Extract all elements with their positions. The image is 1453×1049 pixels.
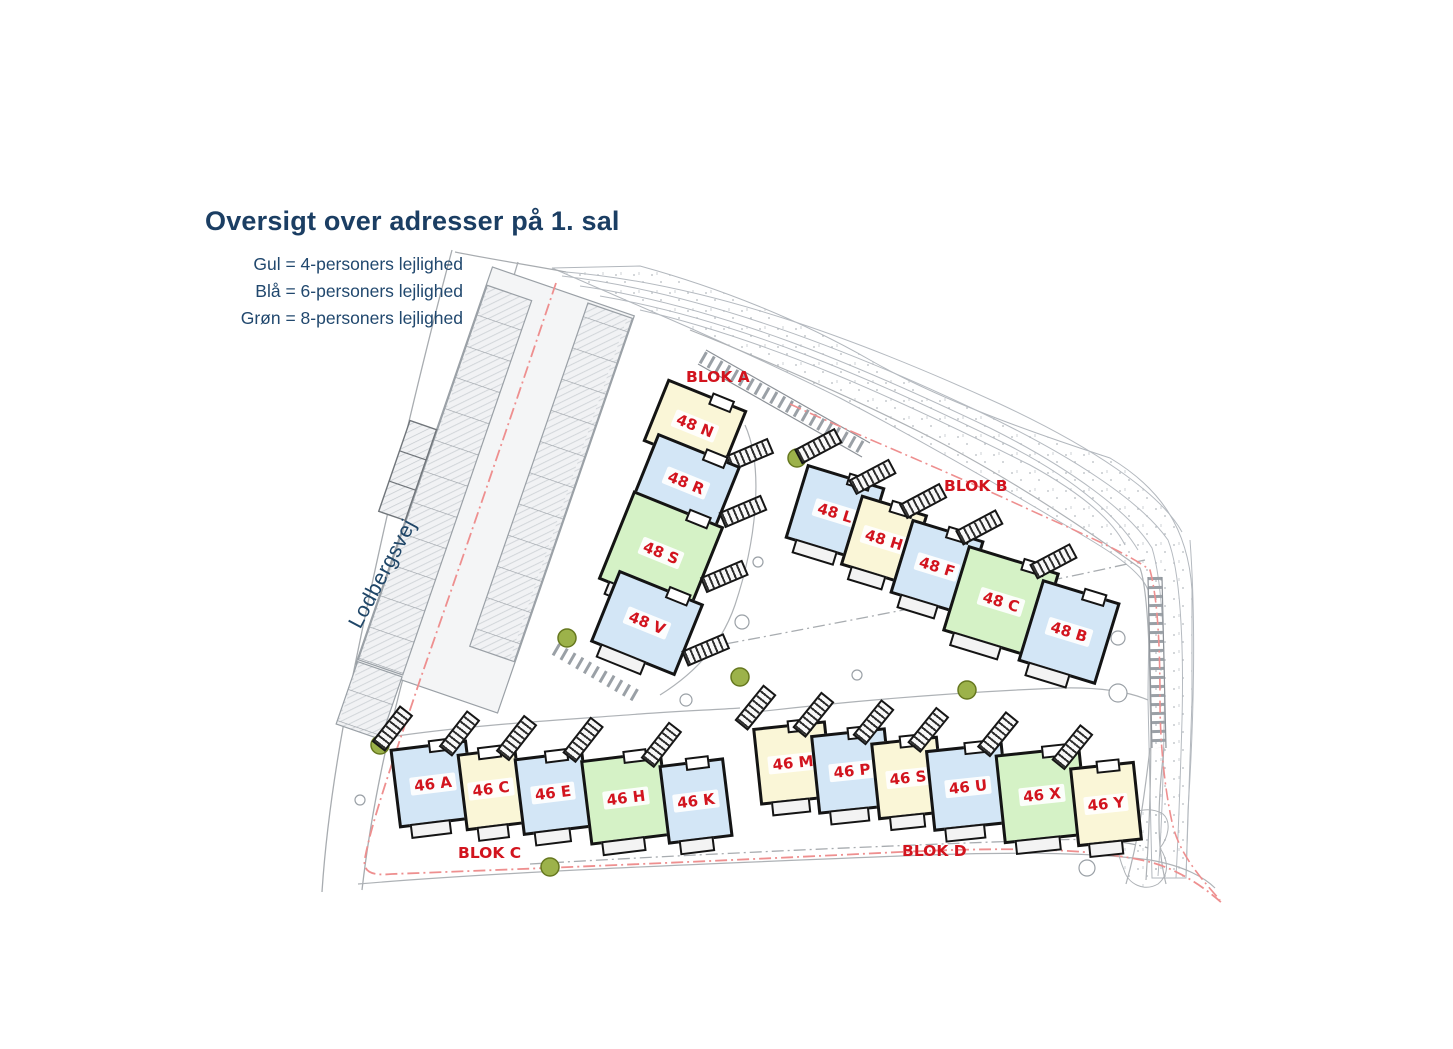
building-46K: 46 K	[658, 757, 733, 844]
legend-item-blaa: Blå = 6-personers lejlighed	[150, 278, 463, 305]
block-label-b: BLOK B	[944, 477, 1008, 495]
site-plan-page: Oversigt over adresser på 1. sal Gul = 4…	[0, 0, 1453, 1049]
legend: Gul = 4-personers lejlighed Blå = 6-pers…	[150, 251, 463, 332]
building-label: 46 P	[829, 760, 876, 783]
page-title: Oversigt over adresser på 1. sal	[205, 206, 620, 237]
building-label: 46 A	[409, 772, 457, 795]
building-label: 46 E	[530, 781, 576, 804]
building-label: 48 C	[977, 587, 1025, 617]
building-label: 48 N	[670, 409, 720, 443]
building-label: 46 H	[602, 786, 651, 810]
building-label: 46 X	[1018, 784, 1065, 807]
building-label: 48 F	[913, 552, 961, 582]
building-46Y: 46 Y	[1069, 761, 1143, 847]
block-label-d: BLOK D	[902, 842, 967, 860]
building-label: 48 S	[637, 536, 685, 570]
building-label: 46 K	[672, 789, 720, 812]
legend-item-groen: Grøn = 8-personers lejlighed	[150, 305, 463, 332]
building-label: 48 R	[661, 466, 710, 500]
legend-item-gul: Gul = 4-personers lejlighed	[150, 251, 463, 278]
block-label-c: BLOK C	[458, 844, 521, 862]
building-label: 46 Y	[1083, 793, 1130, 816]
building-label: 48 V	[622, 606, 671, 640]
building-label: 46 S	[885, 767, 932, 790]
building-label: 48 B	[1045, 617, 1094, 648]
building-label: 46 M	[768, 751, 819, 774]
block-label-a: BLOK A	[686, 368, 750, 386]
building-label: 46 U	[944, 776, 992, 799]
building-label: 46 C	[468, 777, 515, 800]
